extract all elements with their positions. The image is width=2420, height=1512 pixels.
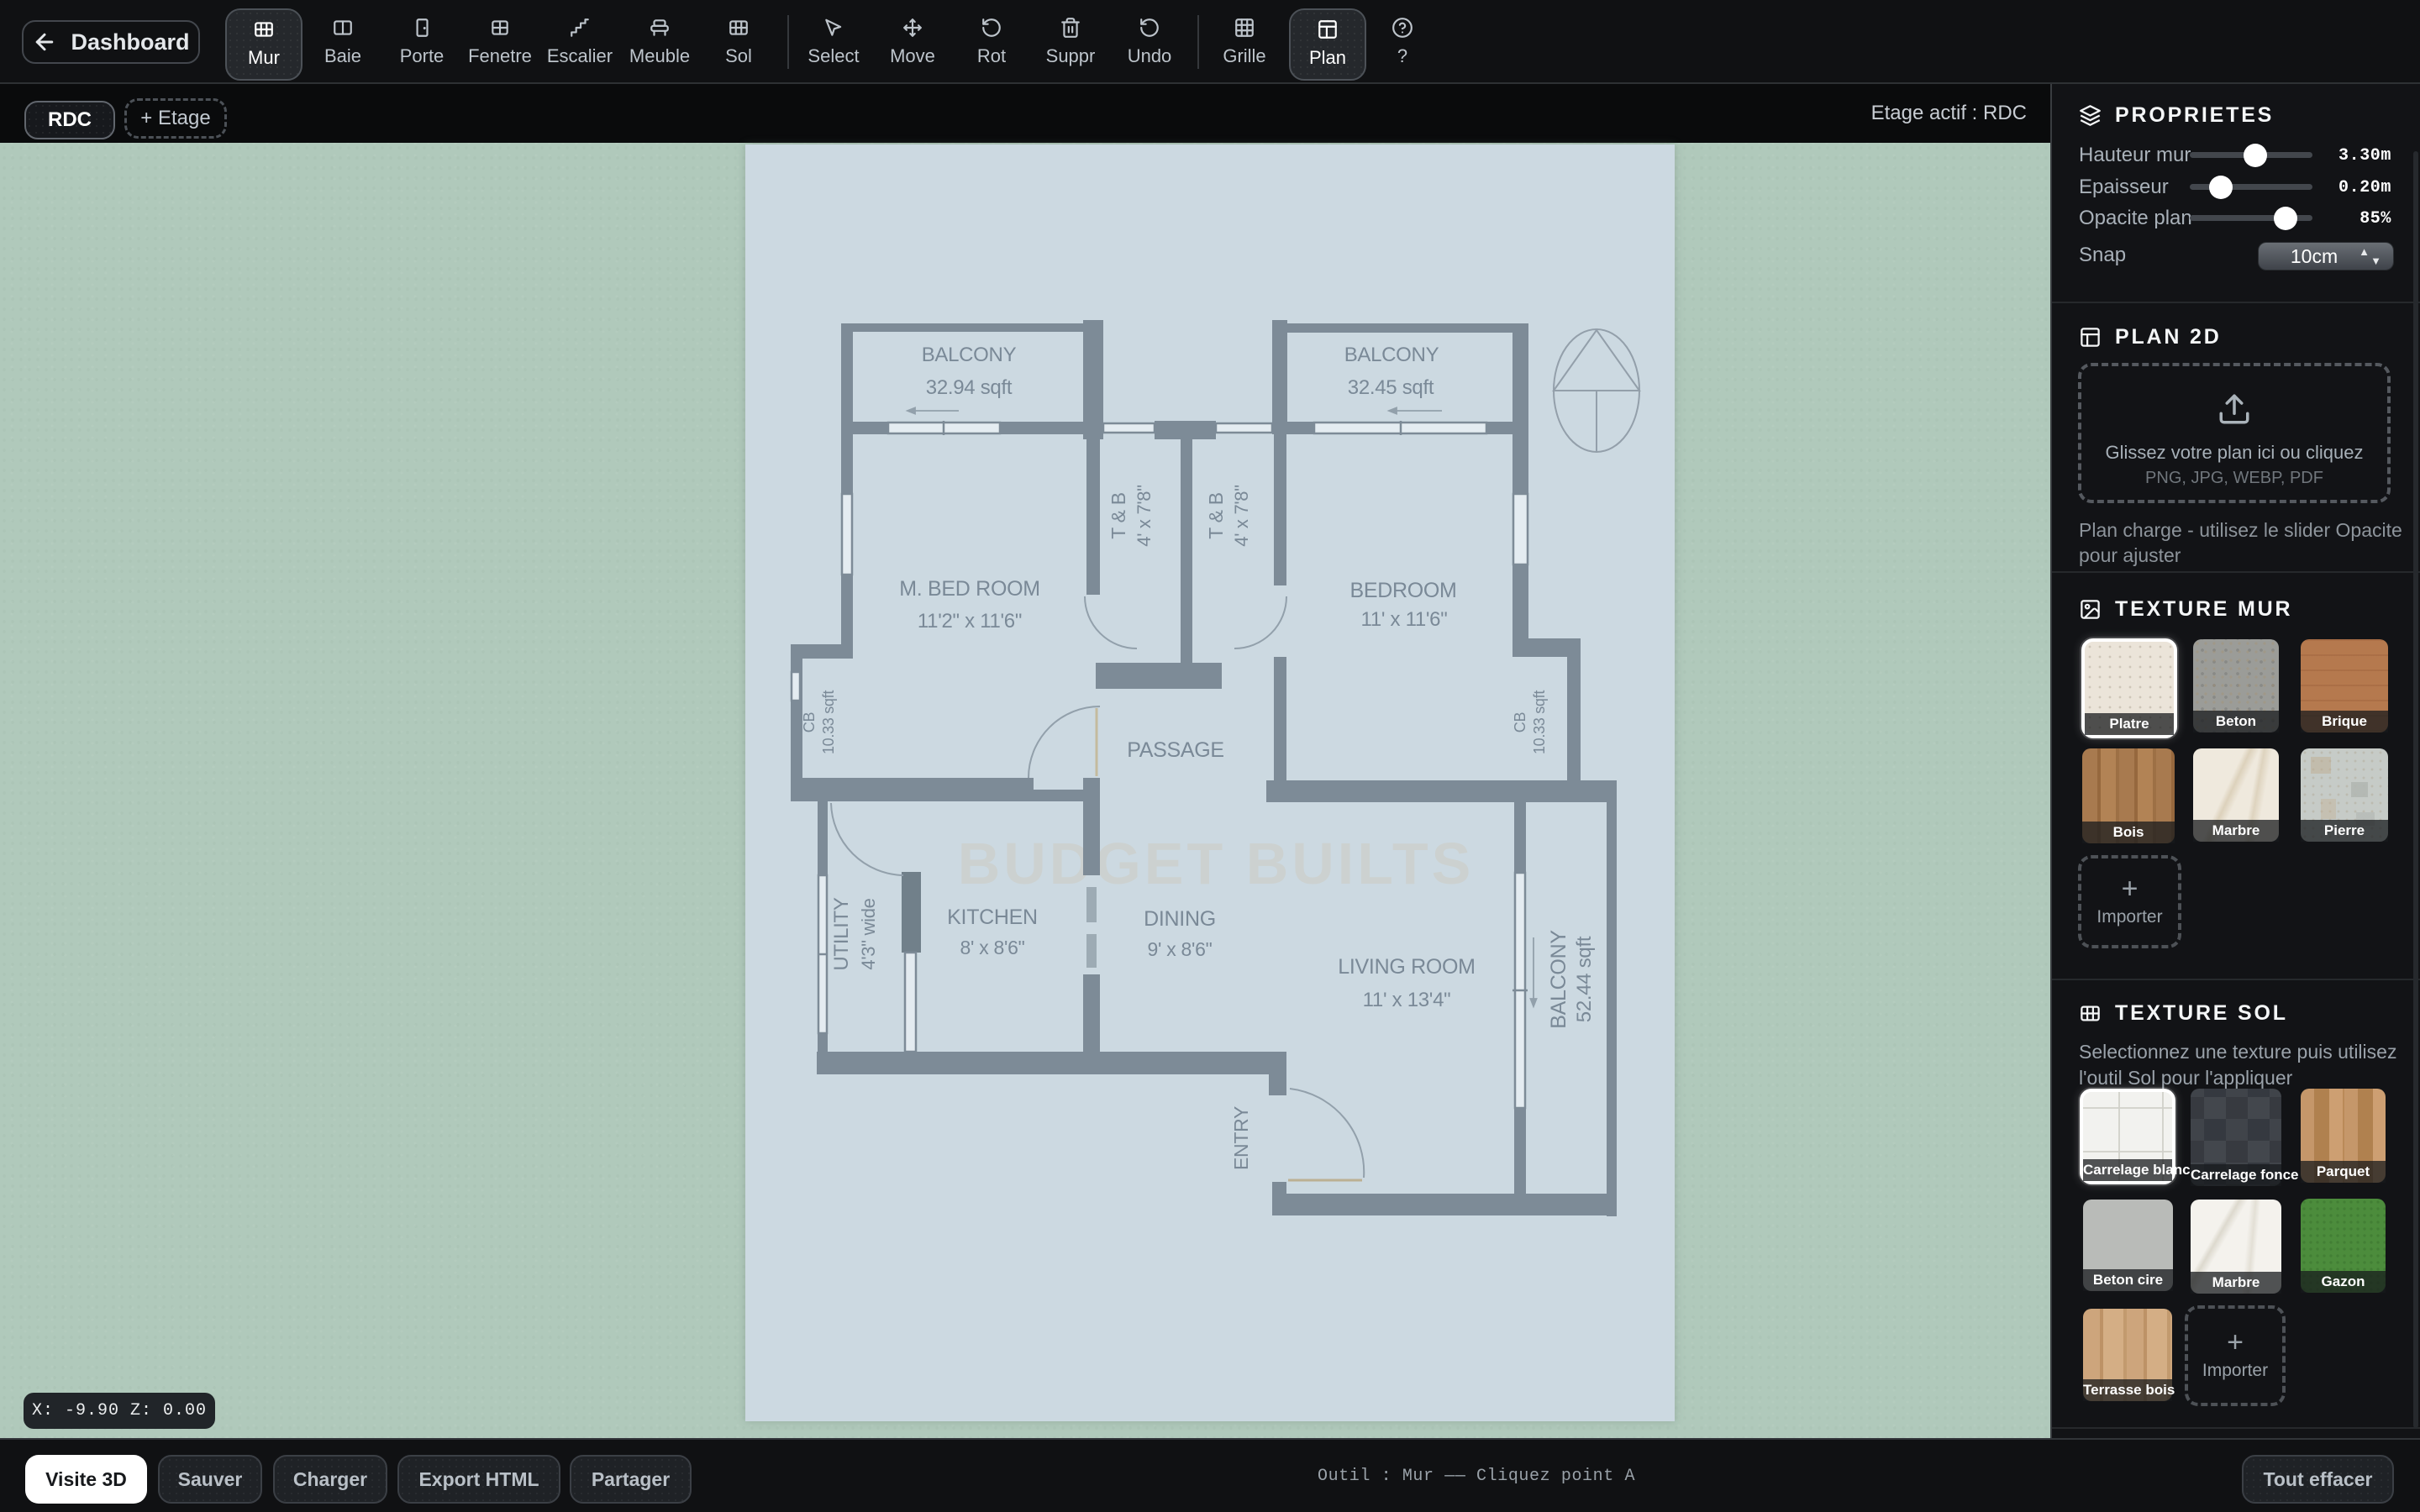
svg-text:T & B: T & B: [1107, 492, 1129, 539]
svg-text:CB: CB: [801, 712, 818, 733]
svg-text:BALCONY: BALCONY: [1547, 930, 1570, 1029]
svg-text:4' x 7'8": 4' x 7'8": [1231, 485, 1252, 546]
svg-text:11'2" x 11'6": 11'2" x 11'6": [918, 610, 1022, 633]
svg-text:BALCONY: BALCONY: [1344, 344, 1439, 366]
svg-text:T & B: T & B: [1205, 492, 1227, 539]
svg-text:11' x 13'4": 11' x 13'4": [1363, 989, 1451, 1011]
svg-text:32.94 sqft: 32.94 sqft: [926, 376, 1013, 399]
svg-text:8' x 8'6": 8' x 8'6": [960, 937, 1025, 958]
svg-text:PASSAGE: PASSAGE: [1127, 738, 1224, 762]
svg-text:UTILITY: UTILITY: [830, 897, 853, 971]
svg-text:DINING: DINING: [1144, 907, 1216, 931]
svg-text:BEDROOM: BEDROOM: [1349, 579, 1456, 602]
svg-text:52.44 sqft: 52.44 sqft: [1573, 936, 1596, 1022]
svg-text:4'3" wide: 4'3" wide: [858, 898, 879, 969]
svg-text:11' x 11'6": 11' x 11'6": [1361, 608, 1448, 631]
svg-text:9' x 8'6": 9' x 8'6": [1148, 938, 1213, 960]
svg-text:10.33 sqft: 10.33 sqft: [820, 690, 837, 754]
svg-text:LIVING ROOM: LIVING ROOM: [1338, 955, 1475, 979]
svg-text:BUDGET BUILTS: BUDGET BUILTS: [958, 831, 1475, 896]
svg-text:10.33 sqft: 10.33 sqft: [1531, 690, 1548, 754]
svg-text:ENTRY: ENTRY: [1230, 1106, 1252, 1170]
svg-text:CB: CB: [1512, 712, 1528, 733]
svg-text:4' x 7'8": 4' x 7'8": [1134, 485, 1155, 546]
svg-text:KITCHEN: KITCHEN: [947, 906, 1038, 929]
svg-text:BALCONY: BALCONY: [922, 344, 1017, 366]
svg-text:M. BED ROOM: M. BED ROOM: [899, 577, 1040, 601]
svg-text:32.45 sqft: 32.45 sqft: [1348, 376, 1434, 399]
